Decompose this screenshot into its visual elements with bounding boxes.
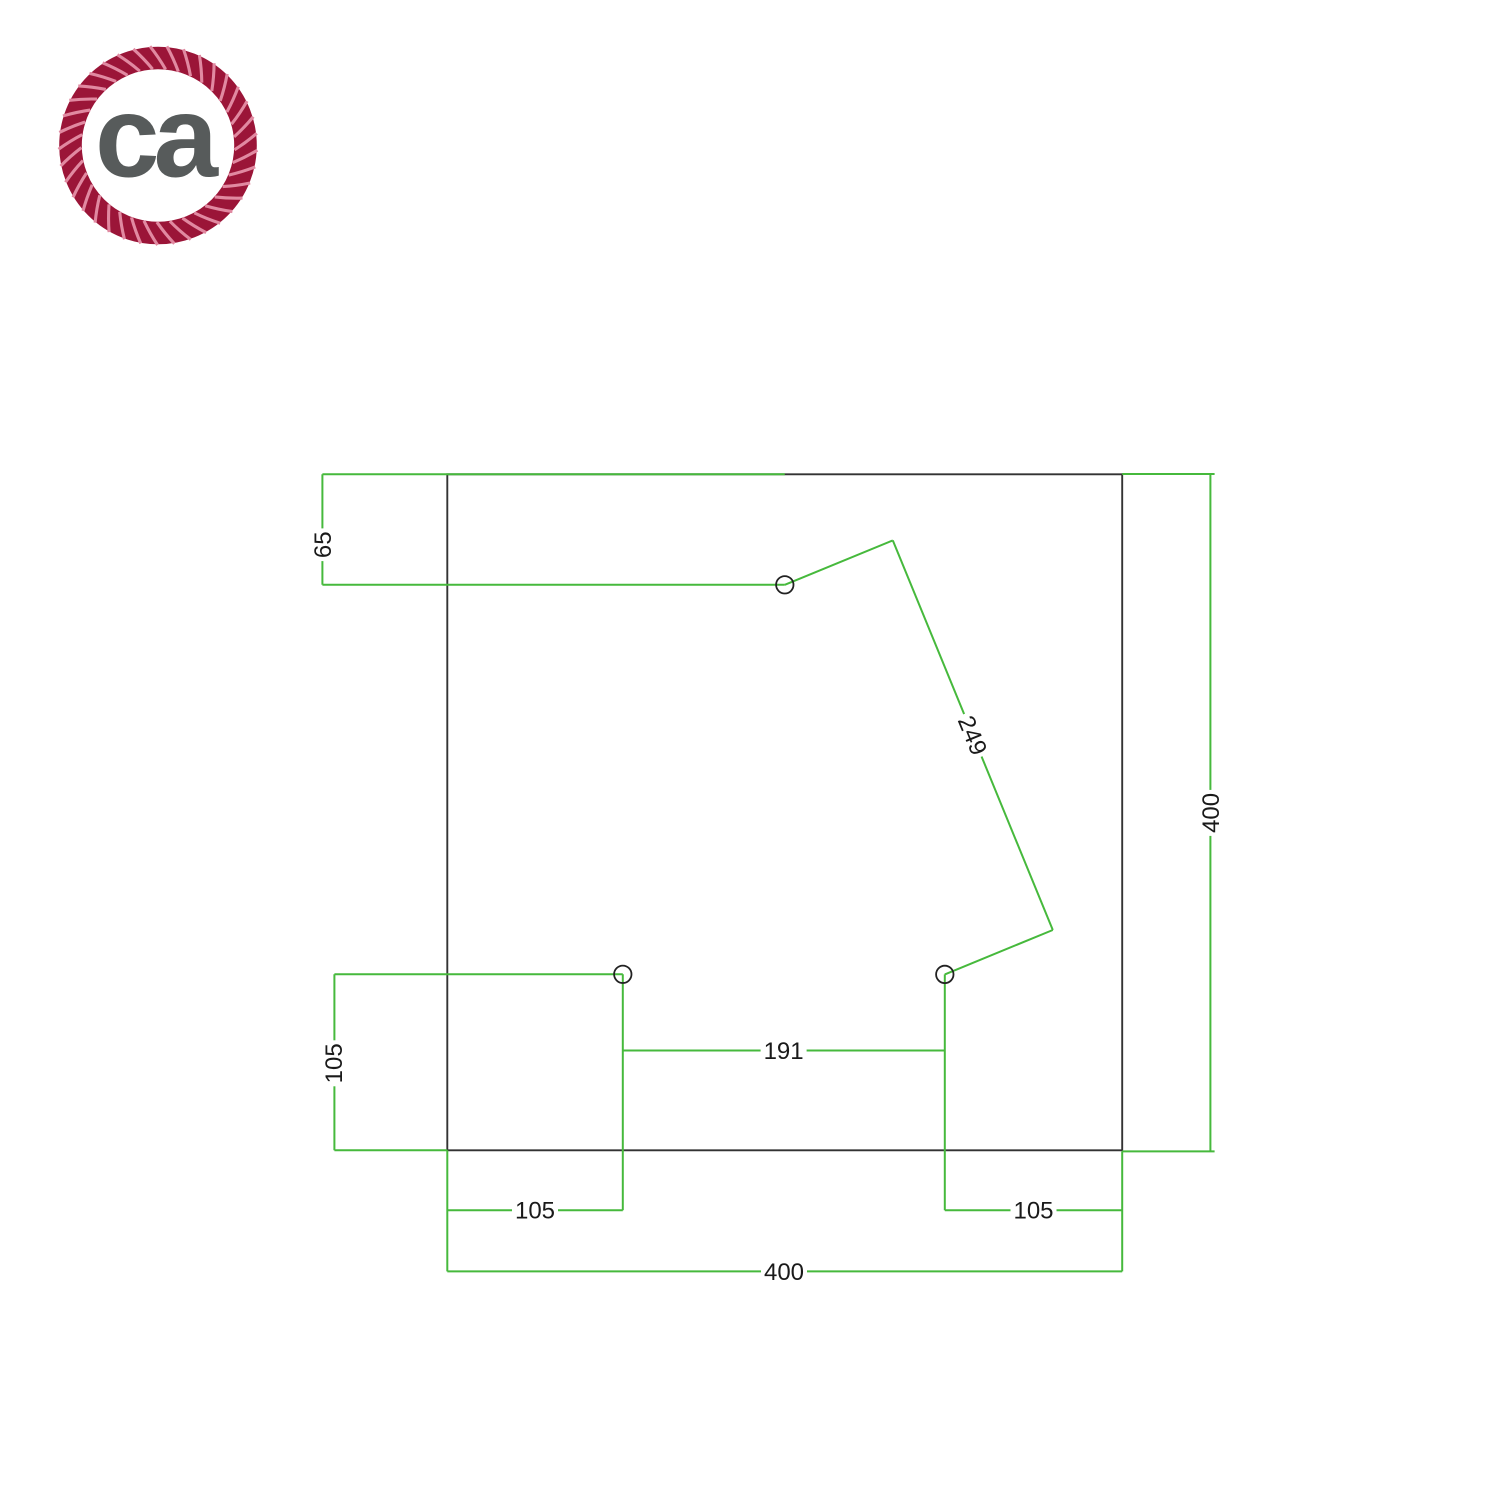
svg-text:400: 400 (1198, 793, 1225, 833)
svg-text:ca: ca (95, 72, 220, 202)
svg-text:105: 105 (1013, 1198, 1053, 1225)
svg-text:191: 191 (764, 1038, 804, 1065)
svg-text:105: 105 (515, 1198, 555, 1225)
svg-text:400: 400 (764, 1259, 804, 1286)
svg-text:105: 105 (321, 1043, 348, 1083)
svg-text:65: 65 (310, 531, 337, 558)
